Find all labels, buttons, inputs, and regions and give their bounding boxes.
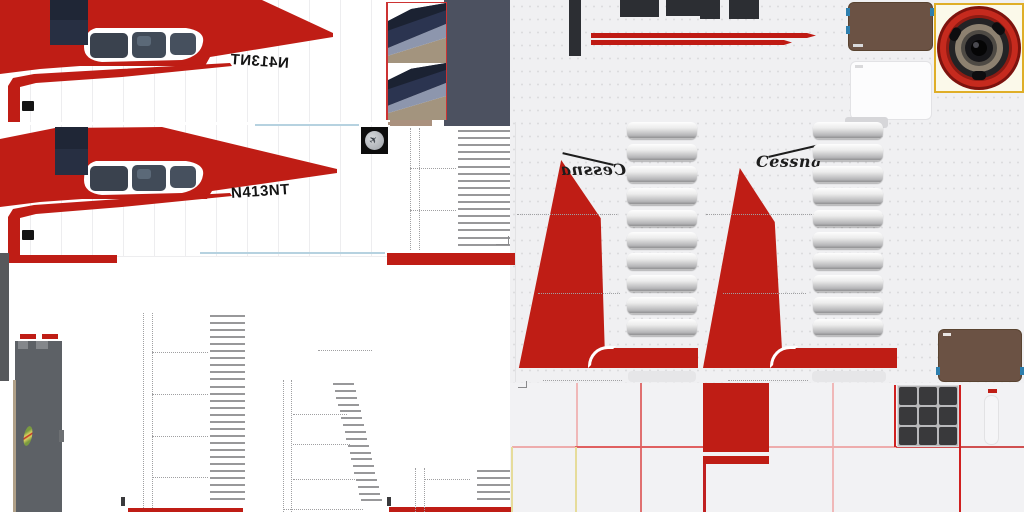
ladder2-dotted-h3: [293, 479, 355, 480]
gear-leg: [15, 341, 62, 512]
ladder-bar: [210, 357, 245, 359]
ladder-bar: [210, 456, 245, 458]
ladder-bar: [351, 458, 372, 460]
gear-leg-tab-1: [18, 341, 28, 349]
ladder-bar: [210, 498, 245, 500]
ladder-bar: [458, 137, 510, 139]
ladder-bar: [210, 442, 245, 444]
flap-rib-bar: [627, 232, 697, 249]
flap-rib-bar: [627, 144, 697, 161]
engine-front-art: [936, 5, 1022, 91]
flap-rib-bar: [627, 122, 697, 139]
wing-left-chord-dotted-1: [517, 214, 617, 215]
wing-right-chord-dotted-2: [723, 293, 806, 294]
door-tab-blue-2: [846, 26, 850, 34]
flap-rib-bar: [813, 319, 883, 336]
ladder-bar: [210, 421, 245, 423]
slim-strut-rect: [984, 395, 999, 445]
flap-rib-bar: [813, 144, 883, 161]
door-panel-brown-lower: [938, 329, 1022, 382]
cut-vline-yellow-2: [575, 447, 577, 512]
underwing-corner-mark: [518, 381, 527, 388]
vent-cell: [939, 427, 957, 445]
ladder-bar: [458, 201, 510, 203]
flap-rib-bar: [627, 275, 697, 292]
speed-stripe-lower: [591, 40, 792, 45]
ladder1-dark-dash: [121, 497, 125, 506]
ladder1-red-bar: [128, 508, 243, 512]
flap-red-bar: [703, 456, 769, 464]
fuselage-right-art: [0, 125, 390, 256]
ladder-bar: [210, 477, 245, 479]
ladder2-dotted-v2: [291, 380, 292, 512]
ladder2-dotted-v1: [283, 380, 284, 512]
ladder2-dotted-top: [318, 350, 372, 351]
speed-stripe-upper: [591, 33, 816, 38]
ladder1-dotted-h4: [152, 477, 208, 478]
ladder-bar: [210, 491, 245, 493]
ladder2-dotted-h1: [293, 414, 347, 415]
ladder-bar: [343, 424, 364, 426]
ladder-bar: [353, 465, 374, 467]
wing-right-chord-dotted-1: [706, 214, 814, 215]
vent-cell: [939, 387, 957, 405]
ladder-bar: [210, 371, 245, 373]
ladder-bar: [335, 390, 356, 392]
cut-vline-yellow-1: [511, 447, 513, 512]
vent-cell: [899, 427, 917, 445]
fuselage-left-art: [0, 0, 390, 122]
ladder-bar: [210, 378, 245, 380]
airplane-icon: ✈: [368, 134, 381, 147]
ladder2-dotted-h4: [283, 509, 363, 510]
ladder-bar: [356, 479, 377, 481]
ladder-bar: [346, 438, 367, 440]
ladder-bar: [341, 417, 362, 419]
ladder-bar: [354, 472, 375, 474]
flap-rib-bar: [813, 122, 883, 139]
brand-logo: Cessna: [756, 142, 820, 172]
ladder-bar: [210, 470, 245, 472]
ladder-corner-bracket: [496, 236, 509, 245]
dark-rect-a: [620, 0, 659, 17]
stitch-dotted-h1: [410, 168, 456, 169]
texture-atlas-canvas: N413NT N413NT: [0, 0, 1024, 512]
gear-red-dash-1: [20, 334, 36, 339]
ladder-bar: [458, 229, 510, 231]
ladder-bar: [210, 428, 245, 430]
ladder-bar: [477, 477, 510, 479]
ladder1-dotted-v1: [143, 313, 144, 512]
door-lower-tab-right: [1020, 367, 1024, 375]
vent-cell: [919, 427, 937, 445]
ladder-bar: [477, 498, 510, 500]
fuselage-right-side-texture: N413NT: [0, 125, 390, 257]
ladder-bar: [361, 499, 382, 501]
cut-vline-pink-1: [576, 383, 578, 447]
ladder-bar: [477, 470, 510, 472]
ladder3-dotted-h1: [424, 479, 470, 480]
engine-front-box: [934, 3, 1024, 93]
door-panel-dash: [853, 44, 863, 47]
ladder-bar: [210, 329, 245, 331]
ladder-bar: [210, 336, 245, 338]
flap-rib-bar: [627, 166, 697, 183]
ladder-bar: [458, 180, 510, 182]
dark-rect-b-notch: [700, 12, 720, 19]
door-white-dash: [855, 65, 863, 68]
flap-rib-bar: [813, 210, 883, 227]
stitch-dotted-v1: [410, 128, 411, 250]
gear-leg-tan-edge: [13, 380, 16, 512]
ladder1-dotted-h1: [152, 352, 208, 353]
ladder-bar: [210, 463, 245, 465]
ladder-bar: [350, 452, 371, 454]
ladder-bar: [210, 315, 245, 317]
flap-rib-bar: [813, 253, 883, 270]
belly-red-strip: [8, 255, 117, 263]
ladder-bar: [210, 322, 245, 324]
vent-cell: [899, 387, 917, 405]
ladder-bar: [210, 364, 245, 366]
ladder-bar: [336, 397, 357, 399]
ladder-bar: [477, 491, 510, 493]
ladder-bar: [340, 410, 361, 412]
flap-red-rect: [703, 383, 769, 452]
door-lower-tab-left: [936, 367, 940, 375]
vent-cell: [919, 407, 937, 425]
ladder-bar: [210, 414, 245, 416]
ladder-bar: [359, 493, 380, 495]
gear-red-dash-2: [42, 334, 58, 339]
brand-text: Cessna: [560, 160, 626, 179]
door-tab-blue-1: [846, 8, 850, 16]
cut-line-blue-bottom: [200, 252, 385, 254]
flap-rib-bar: [813, 297, 883, 314]
vent-grid-3x3: [897, 385, 959, 447]
ladder-bar: [458, 222, 510, 224]
door-lower-dash: [943, 333, 951, 336]
ladder1-dotted-h2: [152, 394, 208, 395]
slate-filler-rect: [444, 0, 510, 126]
ladder1-dotted-v2: [152, 313, 153, 512]
ladder-bar: [458, 144, 510, 146]
ladder2-dark-dash: [387, 497, 391, 506]
ladder-bar: [210, 343, 245, 345]
underwing-tab-right: [812, 371, 886, 382]
ladder3-dotted-v1: [415, 468, 416, 512]
gear-leg-tab-2: [36, 341, 48, 349]
ladder-bar: [210, 449, 245, 451]
ladder-bar: [458, 215, 510, 217]
flap-rib-bar: [627, 210, 697, 227]
ladder-bar: [338, 404, 359, 406]
ladder-bar: [458, 158, 510, 160]
ladder1-dotted-h3: [152, 436, 208, 437]
flap-rib-bar: [627, 188, 697, 205]
wing-boundary-line: [515, 122, 516, 382]
cut-vline-deep-red: [703, 464, 706, 512]
door-panel-white: [850, 61, 932, 120]
logo-roundel-square: ✈: [361, 127, 388, 154]
cut-line-blue-top: [255, 124, 359, 126]
ladder-bar: [210, 400, 245, 402]
dark-vertical-bar: [569, 0, 581, 56]
vent-cell: [939, 407, 957, 425]
red-trim-bar-mid: [387, 253, 515, 265]
underwing-tab-left: [628, 371, 696, 382]
flap-rib-bar: [627, 297, 697, 314]
ladder-bar: [345, 431, 366, 433]
vent-cell: [899, 407, 917, 425]
cut-hline-red: [575, 446, 705, 448]
flap-rib-bar: [627, 253, 697, 270]
logo-roundel-circle: ✈: [365, 131, 384, 150]
brand-logo-mirrored: Cessna: [562, 150, 626, 180]
ladder-bar: [458, 173, 510, 175]
underwing-dotted-right: [728, 380, 808, 381]
ladder-bar: [210, 393, 245, 395]
ladder-bar: [210, 386, 245, 388]
flap-rib-bar: [813, 275, 883, 292]
vent-cell: [919, 387, 937, 405]
grid-red-line-right: [959, 385, 961, 512]
tan-trim-bar: [388, 120, 432, 126]
ladder3-dotted-v2: [424, 468, 425, 512]
ladder-bar: [348, 445, 369, 447]
flap-rib-bar: [813, 188, 883, 205]
flap-rib-bar: [813, 232, 883, 249]
ladder-bar: [210, 435, 245, 437]
glareshield-tile-1: [386, 2, 447, 64]
ladder-bar: [458, 166, 510, 168]
ladder-bar: [458, 130, 510, 132]
ladder2-red-bar: [389, 507, 511, 512]
ladder-bar: [458, 151, 510, 153]
dark-rect-c: [729, 0, 759, 19]
ladder2-dotted-h2: [293, 444, 350, 445]
ladder-bar: [333, 383, 354, 385]
ladder-bar: [210, 350, 245, 352]
wing-left-chord-dotted-2: [538, 293, 620, 294]
ladder-bar: [477, 484, 510, 486]
ladder-bar: [458, 194, 510, 196]
ladder-bar: [210, 407, 245, 409]
flap-rib-bar: [813, 166, 883, 183]
stitch-dotted-v2: [419, 128, 420, 250]
ladder-bar: [210, 484, 245, 486]
flap-rib-bar: [627, 319, 697, 336]
glareshield-tile-2: [386, 63, 447, 120]
gear-nub: [59, 430, 64, 442]
grid-red-line-left: [894, 385, 896, 447]
underwing-dotted-left: [543, 380, 622, 381]
ladder-bar: [458, 208, 510, 210]
small-red-dash: [988, 389, 997, 393]
stitch-dotted-h2: [410, 210, 456, 211]
ladder-bar: [458, 187, 510, 189]
gear-dark-column: [0, 253, 9, 381]
fuselage-left-side-texture: N413NT: [0, 0, 390, 122]
ladder-bar: [358, 486, 379, 488]
